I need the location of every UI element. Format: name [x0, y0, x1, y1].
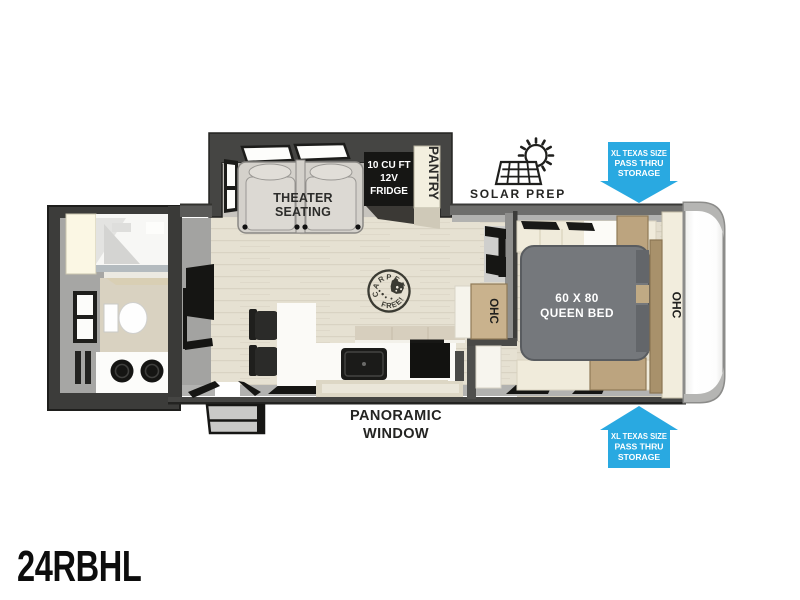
svg-text:60 X 80: 60 X 80 [555, 291, 599, 305]
svg-text:OHC: OHC [487, 298, 499, 324]
svg-text:PASS THRU: PASS THRU [614, 442, 663, 452]
svg-text:24RBHL: 24RBHL [17, 542, 141, 591]
svg-text:XL TEXAS SIZE: XL TEXAS SIZE [611, 431, 667, 441]
svg-text:XL TEXAS SIZE: XL TEXAS SIZE [611, 148, 667, 158]
svg-text:PASS THRU: PASS THRU [614, 158, 663, 168]
svg-text:THEATER: THEATER [273, 191, 333, 205]
svg-text:OHC: OHC [670, 292, 684, 319]
svg-text:FRIDGE: FRIDGE [370, 186, 408, 197]
svg-text:PANORAMIC: PANORAMIC [350, 408, 442, 424]
svg-text:STORAGE: STORAGE [618, 168, 661, 178]
svg-text:QUEEN BED: QUEEN BED [540, 306, 614, 320]
svg-text:WINDOW: WINDOW [363, 426, 429, 442]
svg-text:SEATING: SEATING [275, 205, 331, 219]
svg-text:PANTRY: PANTRY [426, 146, 441, 200]
svg-text:12V: 12V [380, 173, 398, 184]
svg-text:10 CU FT: 10 CU FT [367, 160, 410, 171]
svg-text:STORAGE: STORAGE [618, 452, 661, 462]
svg-text:SOLAR PREP: SOLAR PREP [470, 187, 566, 201]
